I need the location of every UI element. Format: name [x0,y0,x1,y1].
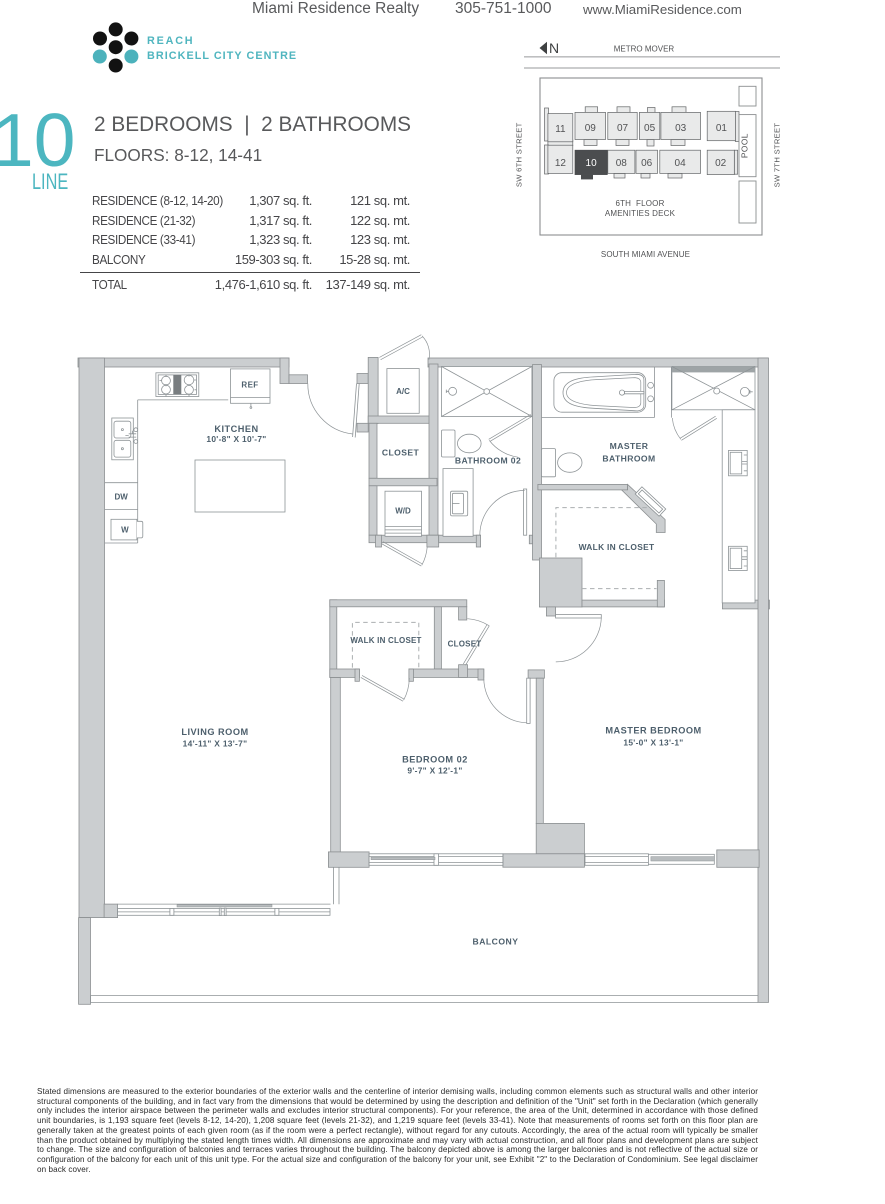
svg-text:BATHROOM 02: BATHROOM 02 [455,456,521,466]
svg-text:07: 07 [617,123,629,134]
svg-text:BALCONY: BALCONY [473,937,519,947]
svg-text:CLOSET: CLOSET [382,448,420,458]
svg-text:08: 08 [616,158,628,169]
svg-text:N: N [549,40,559,56]
svg-text:09: 09 [585,123,597,134]
svg-text:12: 12 [555,158,567,169]
svg-text:REF: REF [241,381,258,390]
svg-text:SW 6TH STREET: SW 6TH STREET [515,122,524,187]
svg-text:06: 06 [641,158,653,169]
svg-text:6TH FLOOR: 6TH FLOOR [615,199,664,208]
svg-text:03: 03 [675,123,687,134]
svg-text:WALK IN CLOSET: WALK IN CLOSET [350,636,421,645]
svg-text:02: 02 [715,158,727,169]
svg-text:BATHROOM: BATHROOM [602,453,655,463]
svg-text:LIVING ROOM: LIVING ROOM [181,727,248,737]
svg-text:14'-11" X 13'-7": 14'-11" X 13'-7" [183,739,248,749]
svg-text:10: 10 [586,158,598,169]
svg-text:MASTER: MASTER [610,441,649,451]
svg-text:15'-0" X 13'-1": 15'-0" X 13'-1" [623,738,683,748]
svg-text:04: 04 [675,158,687,169]
svg-text:WALK IN CLOSET: WALK IN CLOSET [579,542,655,552]
svg-text:METRO MOVER: METRO MOVER [614,45,675,54]
svg-text:BEDROOM 02: BEDROOM 02 [402,755,468,765]
svg-text:DW: DW [115,492,129,501]
svg-text:9'-7" X 12'-1": 9'-7" X 12'-1" [407,766,462,776]
svg-text:11: 11 [555,124,566,135]
svg-text:SW 7TH STREET: SW 7TH STREET [773,123,782,188]
svg-text:A/C: A/C [396,387,410,396]
svg-text:10'-8" X 10'-7": 10'-8" X 10'-7" [206,434,266,444]
svg-text:AMENITIES DECK: AMENITIES DECK [605,209,676,218]
svg-text:W: W [121,525,129,534]
svg-text:CLOSET: CLOSET [448,640,482,649]
svg-text:W/D: W/D [395,507,411,516]
svg-text:SOUTH MIAMI AVENUE: SOUTH MIAMI AVENUE [601,250,690,259]
svg-text:KITCHEN: KITCHEN [214,424,258,434]
svg-text:05: 05 [644,123,656,134]
svg-text:POOL: POOL [740,133,750,158]
svg-text:MASTER BEDROOM: MASTER BEDROOM [605,726,701,736]
svg-text:01: 01 [716,123,728,134]
